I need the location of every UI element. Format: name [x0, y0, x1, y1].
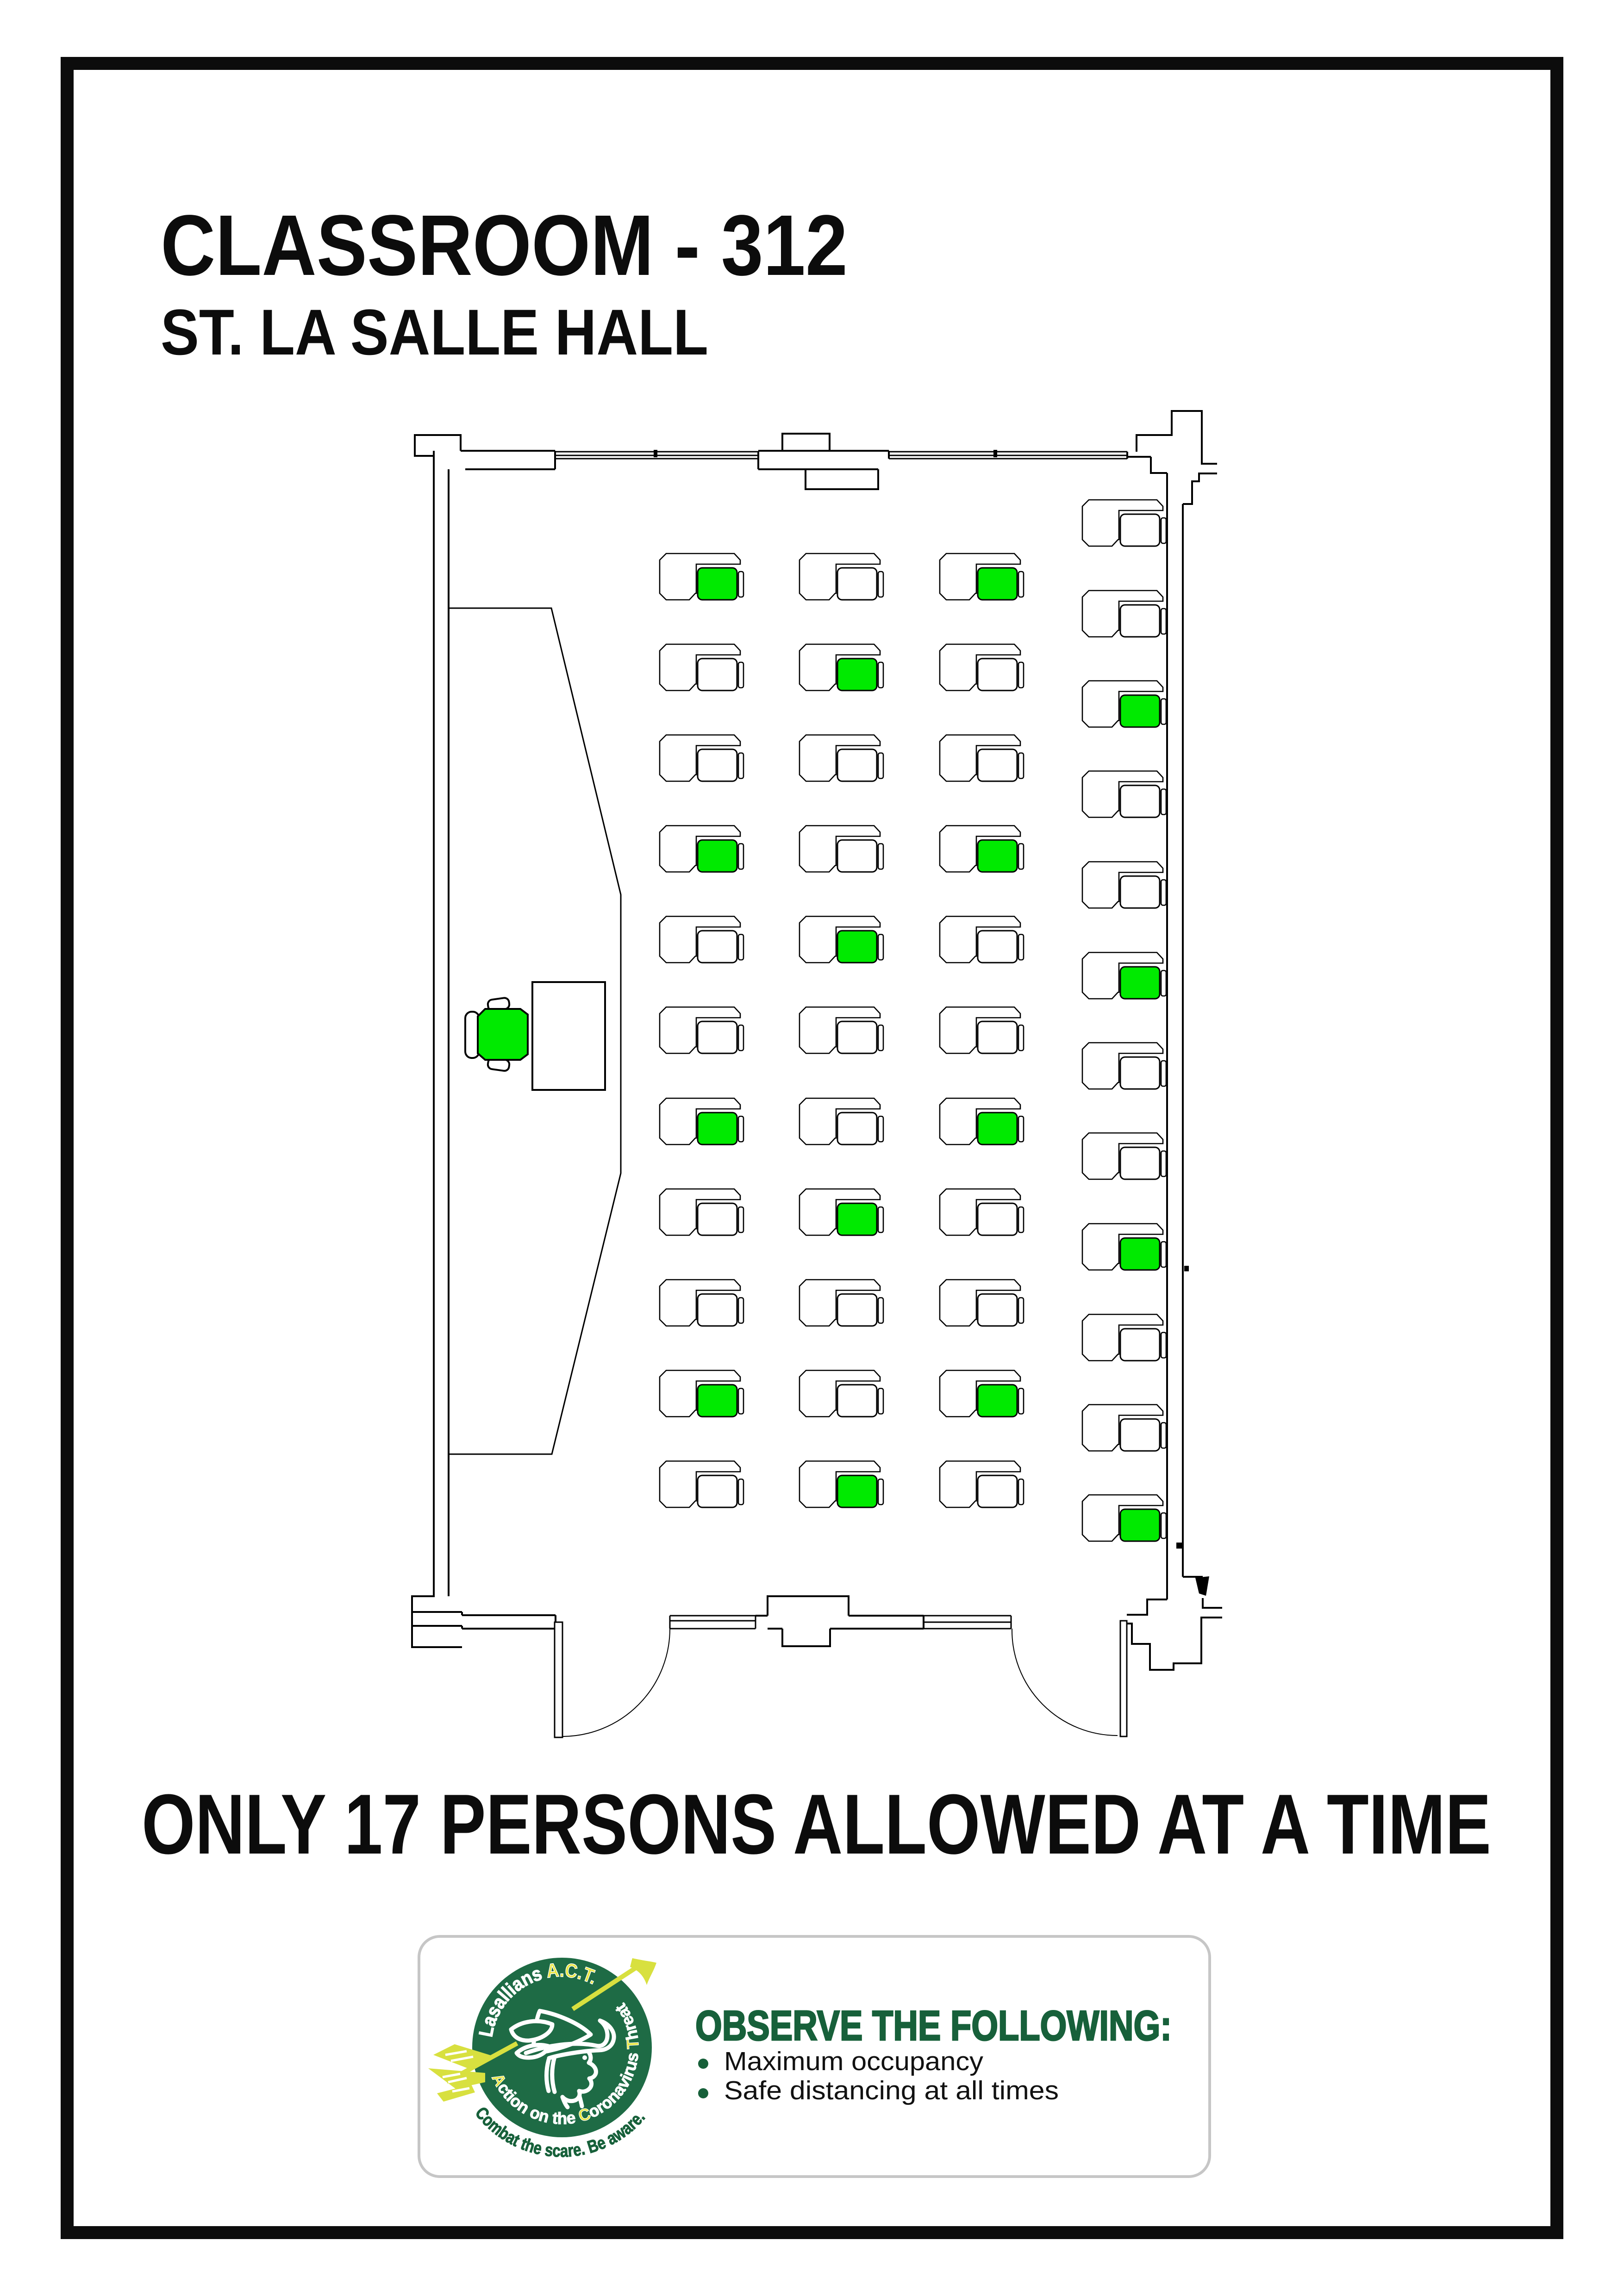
svg-text:ONLY 17 PERSONS ALLOWED AT A T: ONLY 17 PERSONS ALLOWED AT A TIME [142, 1776, 1491, 1872]
svg-text:Maximum occupancy: Maximum occupancy [724, 2047, 984, 2076]
svg-text:Safe distancing at all times: Safe distancing at all times [724, 2076, 1059, 2105]
svg-text:OBSERVE THE FOLLOWING:: OBSERVE THE FOLLOWING: [695, 2003, 1172, 2049]
svg-text:CLASSROOM - 312: CLASSROOM - 312 [161, 198, 848, 293]
svg-text:ST. LA SALLE HALL: ST. LA SALLE HALL [161, 296, 708, 368]
